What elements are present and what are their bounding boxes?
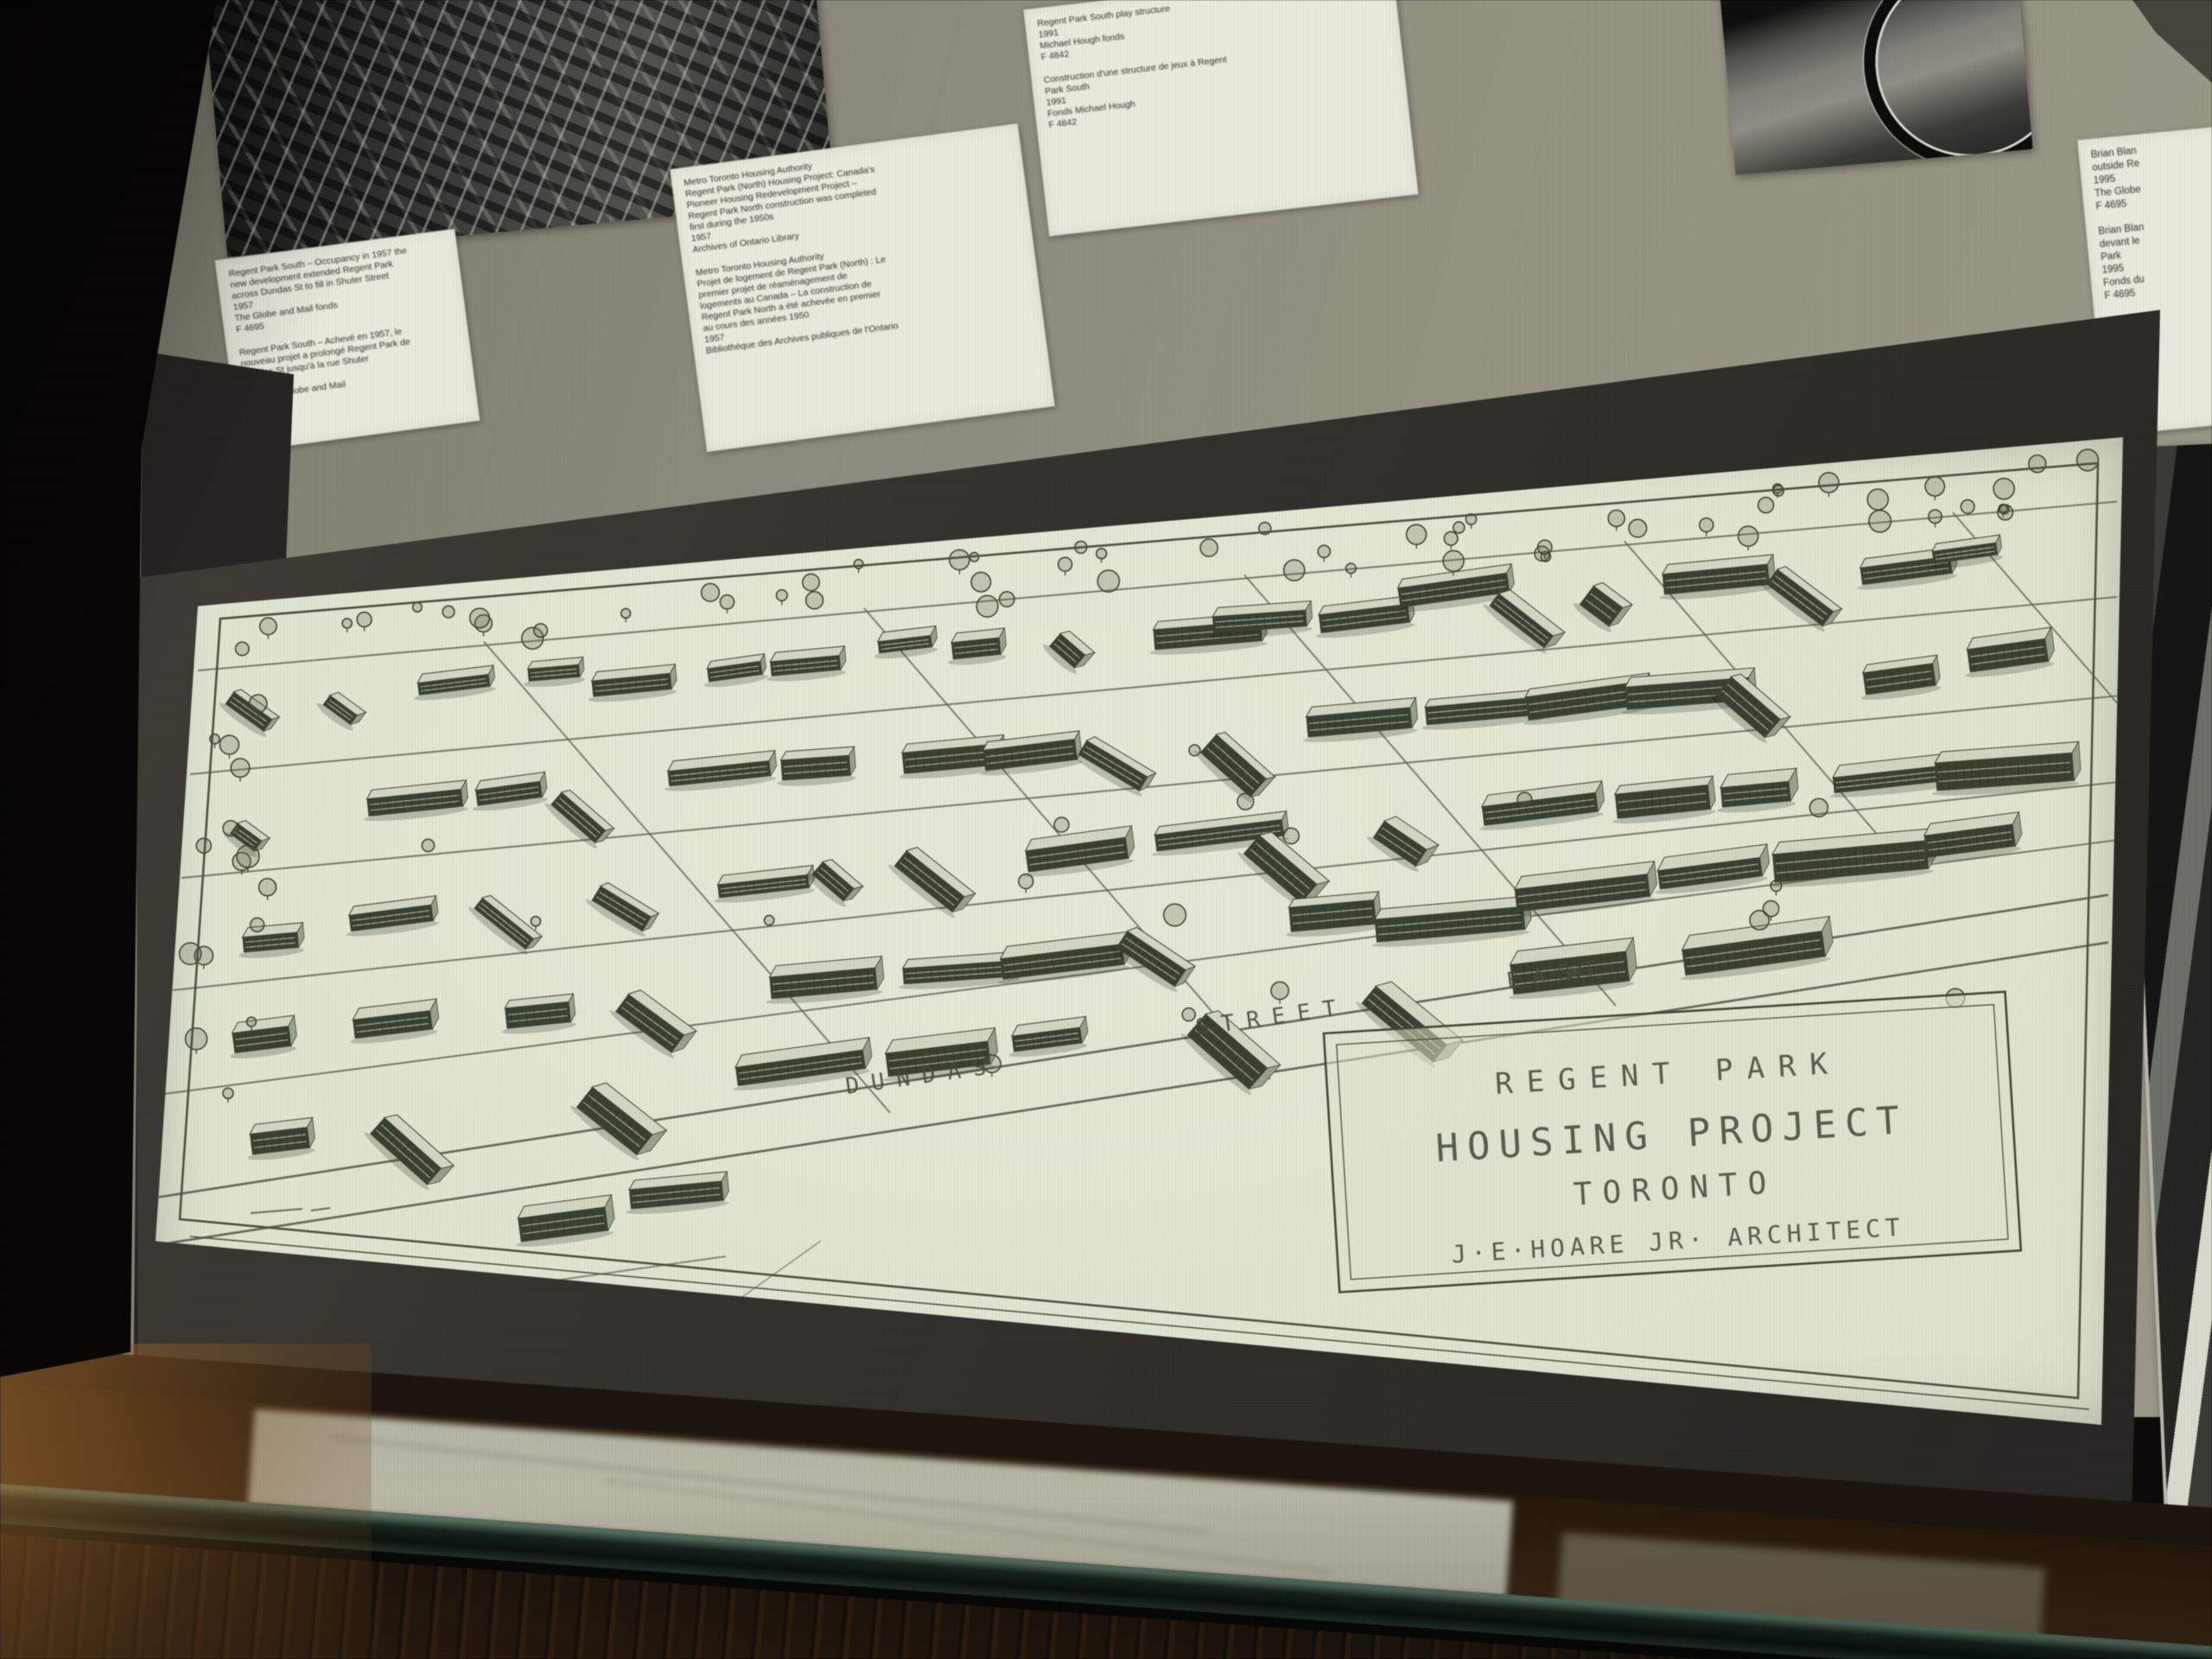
- museum-display-photo: Regent Park South – Occupancy in 1957 th…: [0, 0, 2212, 1659]
- housing-block: [466, 889, 543, 958]
- housing-block: [1508, 861, 1659, 919]
- housing-block: [711, 866, 816, 906]
- housing-block: [661, 751, 778, 794]
- housing-block: [586, 664, 678, 704]
- housing-block: [1857, 655, 1942, 702]
- housing-block: [217, 683, 280, 740]
- housing-block: [1961, 627, 2057, 680]
- housing-block: [1300, 698, 1420, 745]
- title-block: REGENT PARK HOUSING PROJECT TORONTO J·E·…: [1324, 992, 2021, 1293]
- housing-block: [1005, 1016, 1090, 1059]
- housing-block: [804, 853, 863, 910]
- housing-block: [764, 646, 847, 683]
- housing-block: [244, 1117, 317, 1162]
- housing-block: [512, 1195, 617, 1249]
- bicycle-wheel-icon: [1855, 0, 2032, 175]
- bicycle-photograph: [1719, 0, 2033, 175]
- housing-block: [361, 780, 470, 823]
- housing-block: [763, 957, 885, 1007]
- housing-block: [607, 982, 696, 1063]
- housing-block: [1369, 896, 1533, 950]
- housing-block: [1917, 812, 2024, 866]
- housing-block: [1070, 731, 1155, 799]
- housing-block: [1475, 781, 1606, 834]
- housing-block: [1650, 844, 1771, 897]
- housing-block: [1192, 726, 1275, 806]
- housing-block: [346, 999, 441, 1046]
- housing-block: [1766, 829, 1937, 890]
- housing-block: [1656, 555, 1777, 602]
- housing-block: [499, 994, 576, 1036]
- housing-block: [1206, 601, 1313, 641]
- housing-block: [568, 1074, 666, 1166]
- housing-block: [775, 747, 857, 788]
- housing-block: [315, 686, 365, 734]
- housing-block: [1609, 776, 1717, 826]
- housing-block: [1364, 810, 1439, 876]
- housing-block: [872, 626, 939, 661]
- housing-block: [1040, 624, 1095, 677]
- housing-block: [945, 628, 1007, 667]
- housing-block: [623, 1172, 730, 1217]
- housing-block: [1283, 892, 1382, 939]
- caption-card-metro-housing: Metro Toronto Housing AuthorityRegent Pa…: [670, 124, 1055, 452]
- housing-block: [226, 1015, 299, 1061]
- housing-block: [1571, 576, 1632, 636]
- artist-signature: [251, 1208, 330, 1213]
- wood-light-patch: [0, 1344, 372, 1659]
- housing-block: [1929, 741, 2082, 798]
- housing-block: [411, 665, 497, 702]
- housing-block: [343, 896, 441, 939]
- housing-block: [237, 923, 306, 960]
- housing-block: [469, 772, 550, 813]
- caption-english: Brian Blanoutside Re1995The GlobeF 4695: [2090, 129, 2212, 214]
- caption-card-play-structure: Regent Park South play structure1991Mich…: [1023, 0, 1418, 236]
- housing-block: [1714, 768, 1800, 815]
- housing-block: [522, 657, 586, 689]
- housing-block: [994, 931, 1133, 987]
- housing-block: [1019, 826, 1137, 880]
- housing-block: [701, 654, 768, 690]
- housing-block: [583, 878, 658, 940]
- housing-block: [361, 1106, 454, 1194]
- housing-block: [1926, 535, 2004, 571]
